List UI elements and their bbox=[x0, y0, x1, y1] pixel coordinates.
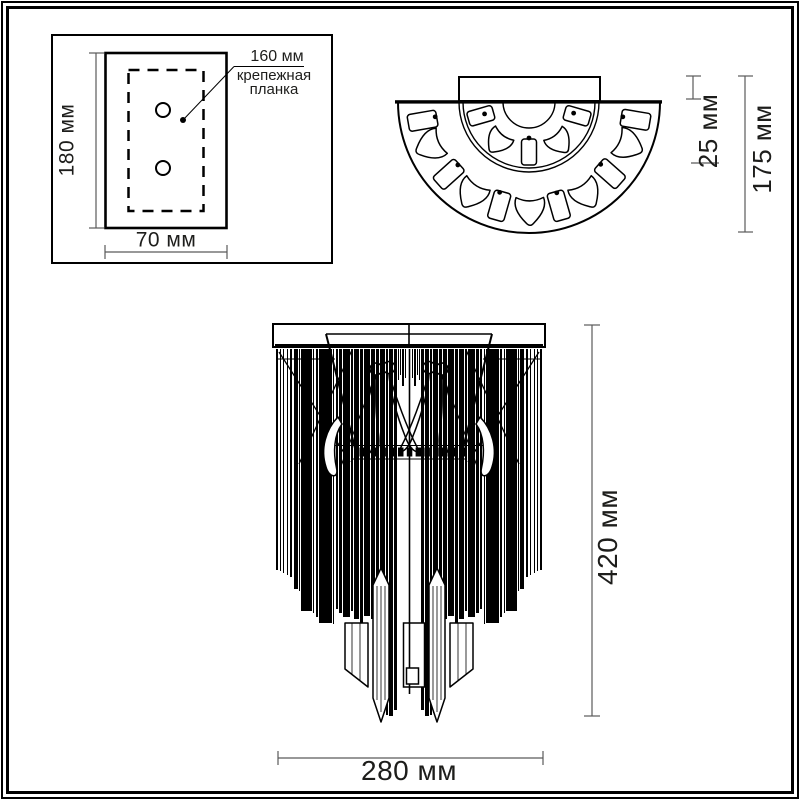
mount-hole-bottom bbox=[156, 161, 170, 175]
fixture-width-label: 280 мм bbox=[361, 757, 457, 785]
mount-hole-top bbox=[156, 103, 170, 117]
top-view-canopy bbox=[459, 77, 600, 101]
top-view bbox=[395, 77, 662, 233]
bar-name-label: крепежная планка bbox=[226, 69, 322, 97]
front-view bbox=[273, 324, 545, 722]
bar-length-label: 160 мм bbox=[250, 49, 303, 65]
top-view-socket-arc bbox=[503, 102, 555, 128]
canopy-depth-label: 25 мм bbox=[695, 94, 721, 168]
mount-bar-dashed-outline bbox=[129, 70, 204, 211]
total-depth-label: 175 мм bbox=[749, 104, 775, 193]
mount-height-label: 180 мм bbox=[57, 104, 78, 177]
mount-plate-outline bbox=[106, 53, 227, 228]
technical-drawing-canvas bbox=[0, 0, 800, 800]
crystal-ring-shapes bbox=[407, 105, 651, 225]
tier2-prism bbox=[345, 623, 368, 687]
fixture-height-label: 420 мм bbox=[594, 489, 622, 585]
top-view-wall-line bbox=[395, 100, 662, 103]
mount-width-label: 70 мм bbox=[136, 230, 197, 251]
